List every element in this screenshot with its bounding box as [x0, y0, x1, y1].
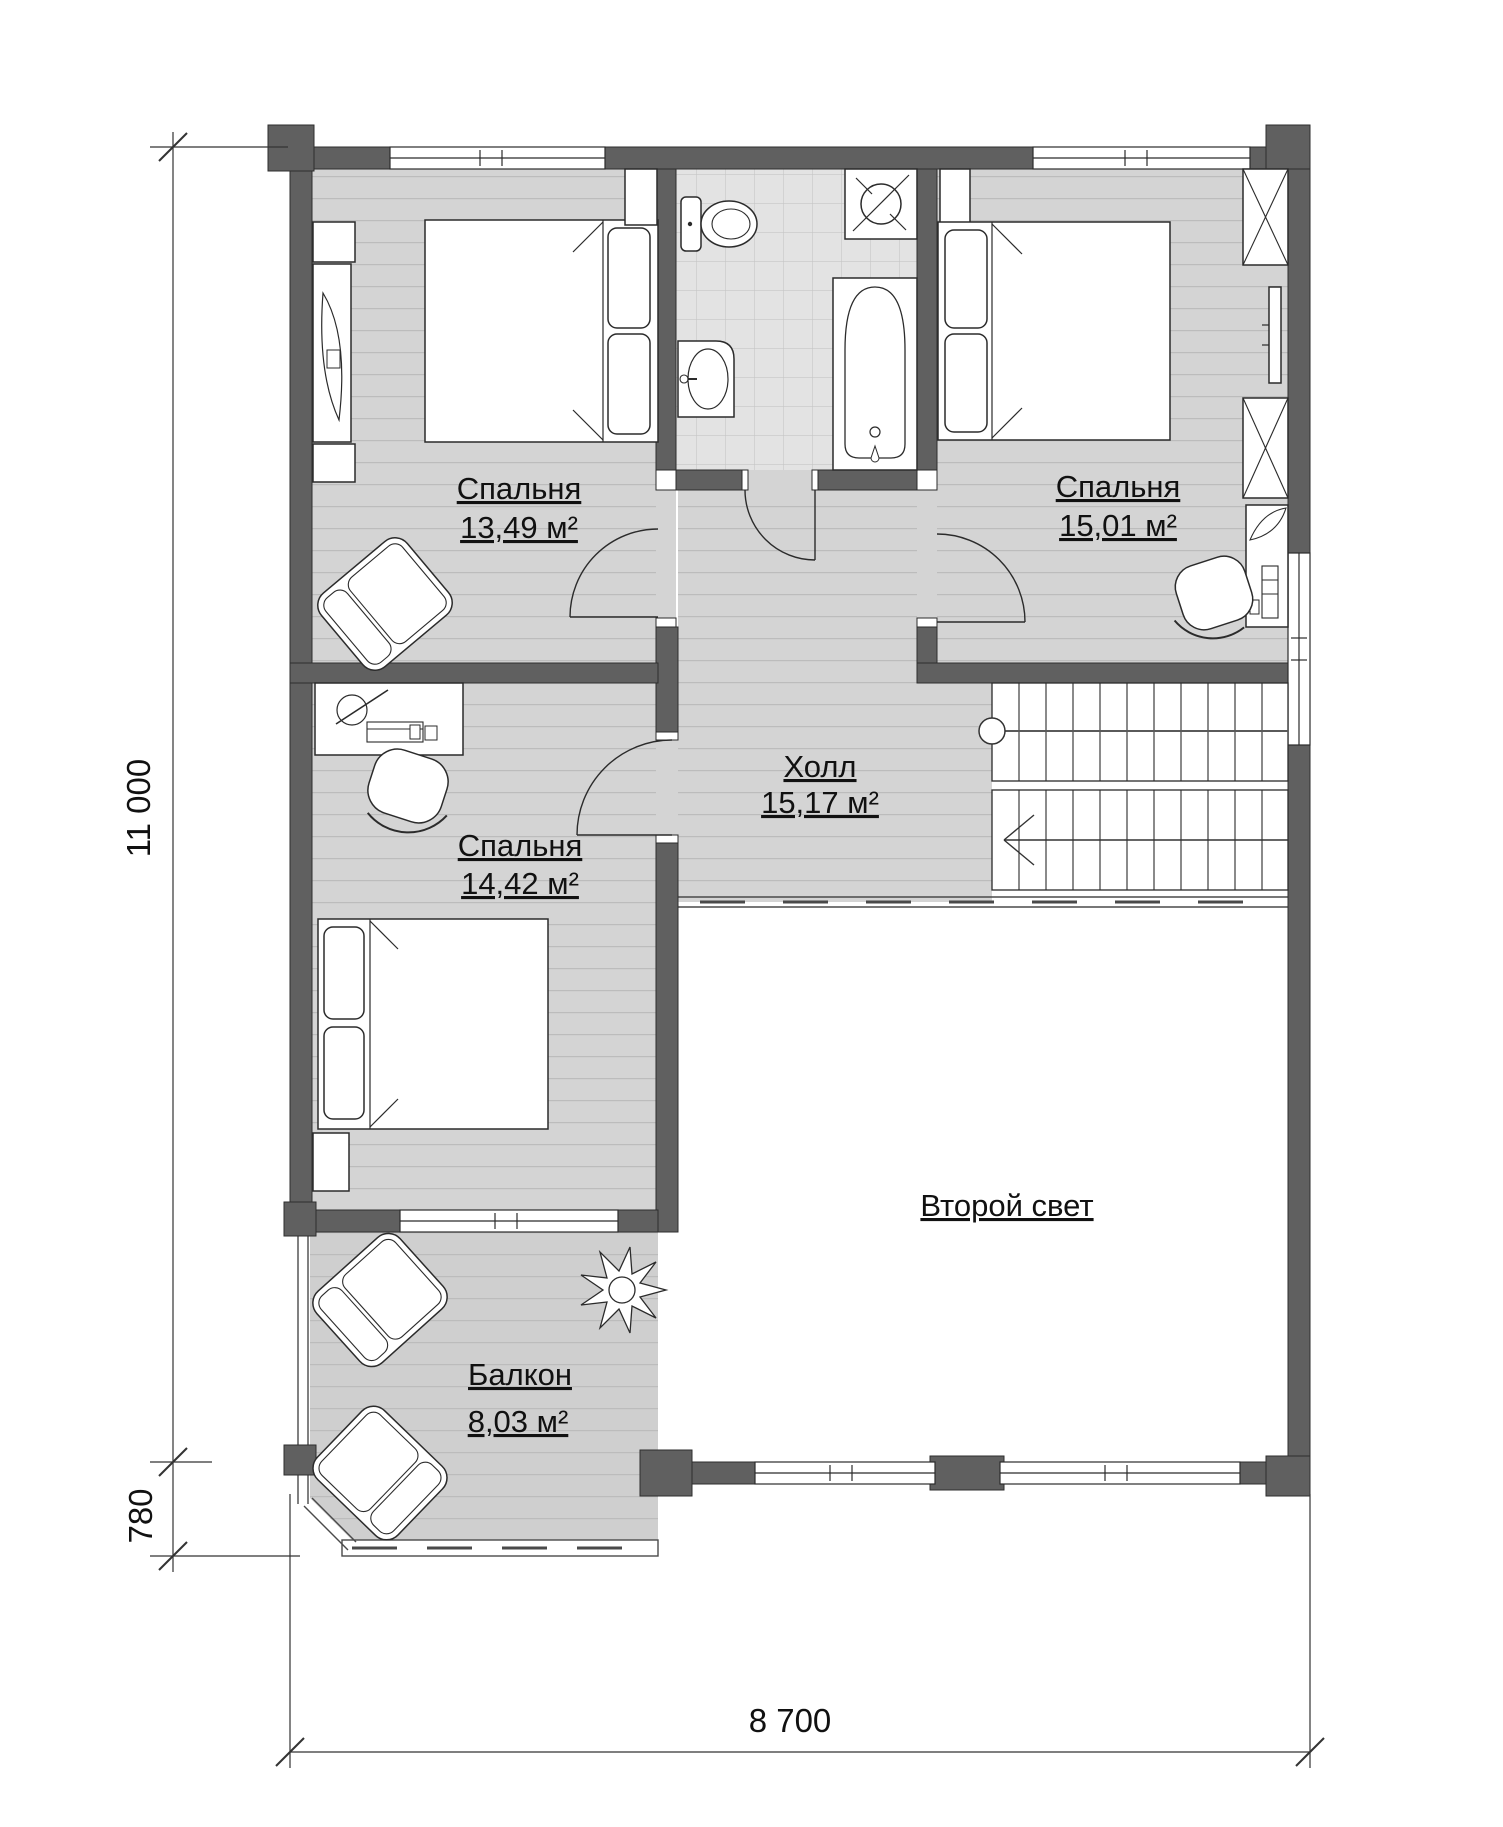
- floor-plan-page: Спальня 13,49 м² Спальня 15,01 м² Спальн…: [0, 0, 1503, 1827]
- bedroom1-area-label: 13,49 м²: [460, 510, 578, 545]
- dim-height-label: 11 000: [120, 759, 157, 857]
- jamb: [656, 470, 676, 490]
- second-light-label: Второй свет: [920, 1188, 1093, 1223]
- jamb: [917, 618, 937, 627]
- wall-balcony-2: [618, 1210, 658, 1232]
- bedroom2-wardrobe-bottom-icon: [1243, 398, 1288, 498]
- window-bedroom2-icon: [1033, 147, 1250, 169]
- wall-stairs: [917, 663, 1288, 683]
- wall-right-2: [1288, 745, 1310, 1490]
- wall-left: [290, 147, 312, 1232]
- floor-plan-svg: Спальня 13,49 м² Спальня 15,01 м² Спальн…: [0, 0, 1503, 1827]
- bathroom-threshold: [748, 470, 812, 490]
- post-bottom-pier: [930, 1456, 1004, 1490]
- post-balcony-mid: [284, 1445, 316, 1475]
- bedroom3-nightstand-icon: [313, 1133, 349, 1191]
- window-stairs-icon: [1288, 553, 1310, 745]
- balcony-name-label: Балкон: [468, 1357, 572, 1392]
- desk-keyboard-icon: [1262, 566, 1278, 618]
- bedroom2-name-label: Спальня: [1056, 469, 1181, 504]
- tv-base-icon: [327, 350, 340, 368]
- bedroom1-bed-icon: [425, 220, 658, 442]
- wall-bedrooms-divider: [290, 663, 658, 683]
- wall-bathroom-right: [917, 169, 937, 470]
- wall-right-1: [1288, 147, 1310, 553]
- window-secondlight-left-icon: [755, 1462, 935, 1484]
- bedroom2-desk-icon: [1246, 505, 1288, 627]
- bedroom3-bed-icon: [318, 919, 548, 1129]
- wall-bedroom3-east: [656, 835, 678, 1232]
- second-light-void: [678, 908, 1288, 1462]
- post-top-right: [1266, 125, 1310, 169]
- wall-top-2: [605, 147, 1033, 169]
- jamb: [656, 618, 676, 627]
- bedroom2-wardrobe-top-icon: [1243, 169, 1288, 265]
- bedroom2-area-label: 15,01 м²: [1059, 508, 1177, 543]
- jamb: [656, 835, 678, 843]
- wall-stub-right: [917, 627, 937, 663]
- wall-stub-left: [656, 627, 678, 740]
- dim-width-label: 8 700: [749, 1702, 832, 1739]
- wall-balcony-1: [312, 1210, 400, 1232]
- toilet-icon: [681, 197, 757, 251]
- bedroom2-bed-icon: [938, 222, 1170, 440]
- wall-hall-header-1: [676, 470, 742, 490]
- wall-bathroom-left: [656, 169, 676, 470]
- bathtub-icon: [833, 278, 917, 470]
- dim-balcony-label: 780: [122, 1488, 159, 1543]
- bedroom3-area-label: 14,42 м²: [461, 866, 579, 901]
- sink-icon: [678, 341, 734, 417]
- jamb: [917, 470, 937, 490]
- window-bedroom1-icon: [390, 147, 605, 169]
- jamb: [812, 470, 818, 490]
- wall-hall-header-2: [818, 470, 917, 490]
- bedroom1-cabinet-icon: [625, 169, 657, 225]
- jamb: [656, 732, 678, 740]
- post-bottom-right: [1266, 1456, 1310, 1496]
- bedroom1-name-label: Спальня: [457, 471, 582, 506]
- post-top-left: [268, 125, 314, 171]
- staircase: [979, 683, 1288, 890]
- hall-name-label: Холл: [783, 749, 856, 784]
- window-secondlight-right-icon: [1000, 1462, 1240, 1484]
- washing-machine-icon: [845, 169, 917, 239]
- window-balcony-icon: [400, 1210, 618, 1232]
- bedroom1-threshold: [656, 490, 676, 618]
- bedroom3-threshold: [656, 740, 678, 835]
- stair-walkline-start-icon: [979, 718, 1005, 744]
- balcony-area-label: 8,03 м²: [468, 1404, 569, 1439]
- bedroom2-threshold: [917, 490, 937, 618]
- jamb: [742, 470, 748, 490]
- bedroom2-cabinet-icon: [940, 169, 970, 225]
- post-balcony-top: [284, 1202, 316, 1236]
- bedroom3-name-label: Спальня: [458, 828, 583, 863]
- post-bottom-junction: [640, 1450, 692, 1496]
- bedroom3-desk-icon: [315, 683, 463, 755]
- hall-area-label: 15,17 м²: [761, 785, 879, 820]
